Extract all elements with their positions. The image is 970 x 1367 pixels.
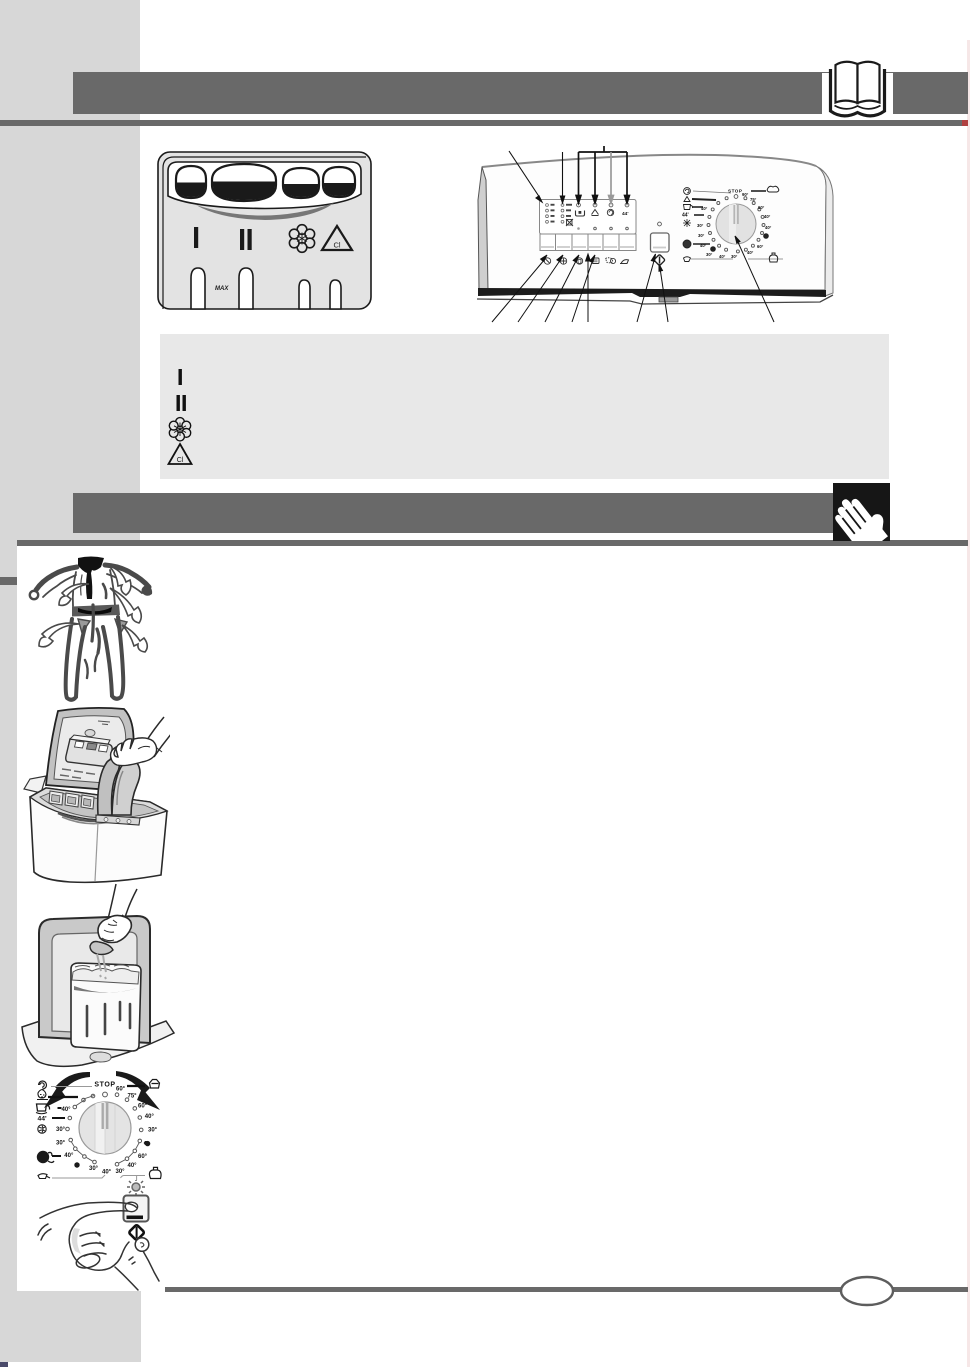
svg-text:60°: 60° [116,1087,126,1093]
svg-text:40°: 40° [765,225,772,230]
svg-text:30°: 30° [89,1166,99,1172]
svg-text:75°: 75° [750,197,757,202]
svg-text:44': 44' [38,1115,48,1122]
svg-text:40°: 40° [701,206,708,211]
svg-text:60°: 60° [138,1154,148,1160]
svg-text:40°: 40° [764,214,771,219]
svg-text:40°: 40° [719,254,726,259]
svg-text:40°: 40° [700,243,707,248]
svg-text:60°: 60° [758,205,765,210]
svg-text:40°: 40° [62,1107,72,1113]
svg-text:Cl: Cl [177,457,184,464]
svg-text:40°: 40° [64,1153,74,1159]
svg-text:30°: 30° [56,1127,66,1133]
svg-text:Cl: Cl [333,241,340,250]
svg-text:75°: 75° [128,1093,138,1099]
svg-text:44': 44' [682,213,689,219]
svg-text:30°: 30° [731,254,738,259]
svg-text:STOP: STOP [728,189,742,194]
svg-text:MAX: MAX [215,286,229,292]
svg-text:30°: 30° [116,1169,126,1175]
svg-text:30°: 30° [148,1128,158,1134]
svg-text:30°: 30° [698,233,705,238]
svg-text:STOP: STOP [94,1082,115,1089]
svg-text:40°: 40° [128,1163,138,1169]
svg-text:40°: 40° [102,1170,112,1176]
svg-text:60°: 60° [138,1104,148,1110]
svg-text:40°: 40° [747,250,754,255]
svg-text:40°: 40° [145,1114,155,1120]
svg-text:90°: 90° [742,192,749,197]
svg-text:60°: 60° [757,244,764,249]
svg-text:30°: 30° [56,1141,66,1147]
svg-text:30°: 30° [697,223,704,228]
svg-text:30°: 30° [706,252,713,257]
svg-text:44': 44' [622,211,628,217]
